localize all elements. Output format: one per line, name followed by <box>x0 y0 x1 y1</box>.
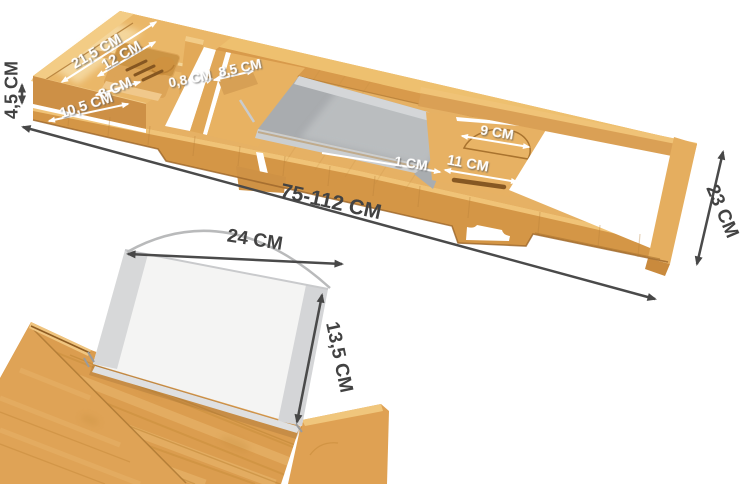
svg-text:4,5 CM: 4,5 CM <box>1 61 21 119</box>
